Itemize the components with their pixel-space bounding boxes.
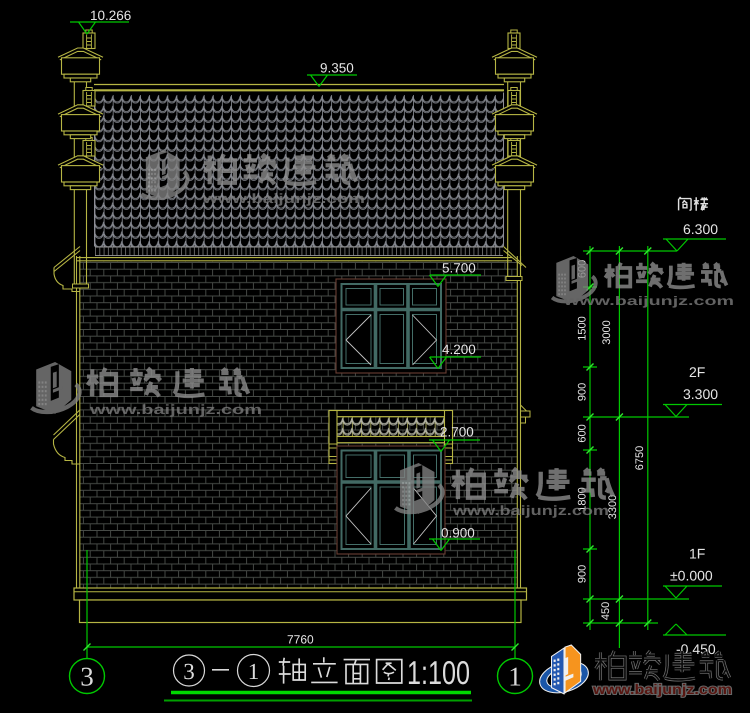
- svg-text:900: 900: [577, 383, 589, 401]
- svg-text:7760: 7760: [287, 633, 314, 647]
- svg-text:6.300: 6.300: [683, 221, 718, 237]
- svg-text:10.266: 10.266: [90, 8, 131, 23]
- svg-text:www.baijunjz.com: www.baijunjz.com: [202, 191, 365, 206]
- svg-text:1F: 1F: [689, 546, 705, 562]
- svg-text:450: 450: [600, 602, 612, 620]
- svg-text:www.baijunjz.com: www.baijunjz.com: [562, 294, 734, 308]
- svg-text:www.baijunjz.com: www.baijunjz.com: [452, 503, 609, 518]
- svg-text:1: 1: [248, 659, 260, 684]
- svg-text:6750: 6750: [634, 446, 646, 470]
- svg-text:www.baijunjz.com: www.baijunjz.com: [89, 402, 262, 417]
- svg-text:3000: 3000: [601, 320, 613, 344]
- svg-text:3: 3: [80, 662, 94, 692]
- svg-text:www.baijunjz.com: www.baijunjz.com: [592, 681, 732, 697]
- svg-text:5.700: 5.700: [442, 261, 476, 276]
- svg-text:600: 600: [577, 424, 589, 442]
- svg-text:9.350: 9.350: [320, 61, 354, 76]
- svg-text:3: 3: [183, 659, 195, 684]
- svg-text:0.900: 0.900: [441, 526, 475, 541]
- svg-text:2F: 2F: [689, 364, 705, 380]
- svg-text:1:100: 1:100: [407, 654, 470, 691]
- svg-text:4.200: 4.200: [442, 342, 476, 357]
- svg-text:2.700: 2.700: [440, 425, 474, 440]
- svg-text:900: 900: [577, 565, 589, 583]
- svg-text:1: 1: [508, 662, 522, 692]
- svg-text:1500: 1500: [577, 316, 589, 340]
- svg-text:3.300: 3.300: [683, 386, 718, 402]
- svg-text:±0.000: ±0.000: [670, 568, 713, 584]
